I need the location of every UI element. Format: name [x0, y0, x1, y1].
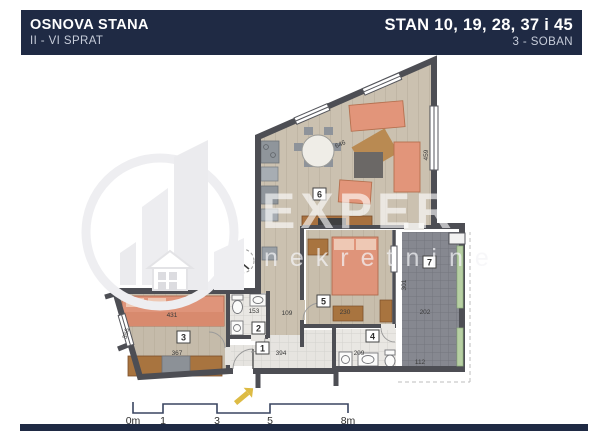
- coffee-table: [354, 152, 383, 178]
- scale-bar-line: [133, 402, 348, 413]
- svg-text:5: 5: [321, 297, 326, 307]
- page-title: OSNOVA STANA: [30, 16, 149, 34]
- room-tag-1: 1: [256, 342, 269, 354]
- dim-label: 230: [340, 309, 351, 316]
- watermark-brand-text: EXPERT: [262, 183, 492, 239]
- dim-label: 112: [415, 359, 426, 366]
- dim-label: 394: [276, 350, 287, 357]
- watermark-subtitle-text: nekretnine: [264, 244, 501, 272]
- dim-label: 459: [423, 149, 430, 160]
- room-tag-5: 5: [317, 295, 330, 307]
- room-count-subtitle: 3 - SOBAN: [385, 36, 574, 50]
- floor-plan-drawing: 1 2 3 4 5 6 7: [0, 0, 600, 431]
- entrance-door-gap: [233, 366, 253, 375]
- dim-label: 109: [282, 310, 293, 317]
- room-tag-2: 2: [252, 322, 265, 334]
- dim-label: 202: [420, 309, 431, 316]
- dim-label: 431: [167, 312, 178, 319]
- header-right: STAN 10, 19, 28, 37 i 45 3 - SOBAN: [385, 16, 574, 50]
- floor-range-subtitle: II - VI SPRAT: [30, 34, 149, 48]
- railing-planter: [457, 328, 463, 366]
- room-tag-3: 3: [177, 331, 190, 343]
- svg-text:3: 3: [181, 333, 186, 343]
- floor-plan-page: 1 2 3 4 5 6 7: [0, 0, 600, 431]
- header-left: OSNOVA STANA II - VI SPRAT: [30, 16, 149, 49]
- footer-bar: [20, 424, 588, 431]
- room-tag-4: 4: [366, 330, 379, 342]
- watermark-logo: [86, 140, 244, 306]
- dim-label: 301: [401, 279, 408, 290]
- apartment-numbers-title: STAN 10, 19, 28, 37 i 45: [385, 16, 574, 36]
- entrance-arrow: [231, 383, 257, 408]
- svg-text:4: 4: [370, 332, 375, 342]
- header-bar: OSNOVA STANA II - VI SPRAT STAN 10, 19, …: [21, 10, 582, 55]
- dim-label: 209: [354, 350, 365, 357]
- svg-text:2: 2: [256, 324, 261, 334]
- dim-label: 367: [172, 350, 183, 357]
- svg-text:1: 1: [260, 344, 265, 354]
- dim-label: 153: [249, 308, 260, 315]
